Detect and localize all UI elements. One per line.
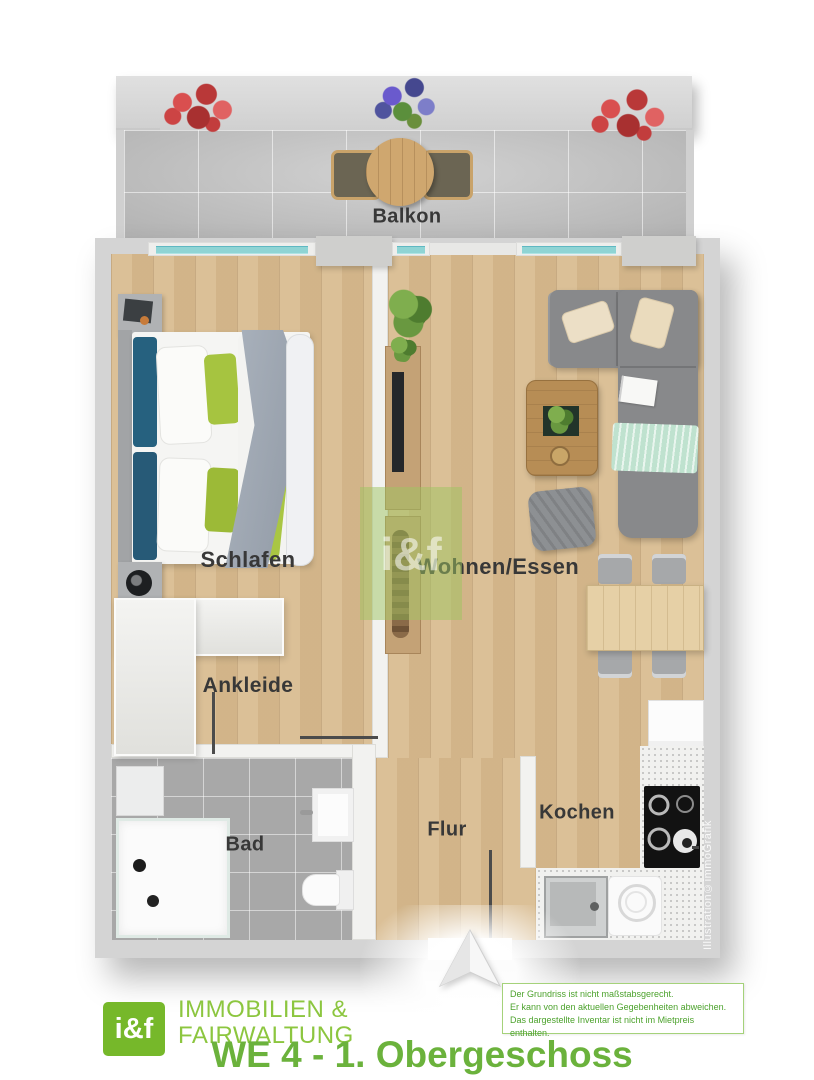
- floorplan-page: Balkon: [0, 0, 814, 1080]
- watermark-badge: i&f: [360, 487, 462, 620]
- kitchen-cooktop: [644, 786, 700, 868]
- sofa-blanket-mint: [611, 423, 699, 474]
- balcony-table: [366, 138, 434, 206]
- balcony-side-rail-left: [116, 130, 124, 238]
- bed-pillow-teal-bottom: [133, 452, 157, 560]
- entrance-arrow: [436, 928, 504, 994]
- dining-table: [586, 585, 704, 651]
- shower-drain: [147, 895, 159, 907]
- shower-handle: [133, 859, 146, 872]
- window-glass-wohnen: [522, 246, 616, 254]
- balcony-side-rail-right: [686, 130, 694, 238]
- bed-pillow-white-bottom: [156, 457, 211, 553]
- nightstand-lamp: [126, 570, 152, 596]
- kitchen-faucet: [590, 902, 599, 911]
- window-glass-schlafen: [156, 246, 308, 254]
- washbasin: [312, 788, 354, 842]
- sofa-book: [618, 376, 657, 407]
- potted-plant-large: [386, 286, 436, 338]
- cooktop-burners: [644, 786, 700, 868]
- disclaimer-box: Der Grundriss ist nicht maßstabsgerecht.…: [502, 983, 744, 1034]
- room-label-ankleide: Ankleide: [203, 674, 294, 698]
- coffee-table-cup: [550, 446, 570, 466]
- window-glass-small: [397, 246, 425, 254]
- nightstand-deco-dot: [140, 316, 149, 325]
- room-label-balkon: Balkon: [372, 206, 441, 229]
- shower: [116, 818, 230, 938]
- bed-pillow-teal-top: [133, 337, 157, 447]
- flower-box-center: [370, 72, 444, 132]
- balcony-door-threshold: [430, 243, 516, 255]
- wall-pier-left: [316, 236, 392, 266]
- tv-screen: [392, 372, 404, 472]
- disclaimer-line-1: Der Grundriss ist nicht maßstabsgerecht.: [510, 988, 736, 1001]
- dining-chair-bottom-right: [652, 648, 686, 678]
- room-label-flur: Flur: [427, 819, 466, 842]
- sofa-seam-vertical: [616, 292, 618, 366]
- bath-cabinet: [116, 766, 164, 816]
- room-label-bad: Bad: [226, 834, 265, 857]
- bed-headboard: [118, 330, 132, 566]
- kitchen-drainer: [608, 876, 662, 936]
- dining-chair-top-right: [652, 554, 686, 584]
- room-label-schlafen: Schlafen: [201, 547, 296, 573]
- sofa-seam-horizontal: [620, 366, 696, 368]
- lounge-pouf: [527, 486, 597, 552]
- washbasin-faucet: [300, 810, 313, 815]
- bed-bolster-white: [286, 334, 314, 566]
- illustration-credit: Illustration©immoGrafik: [702, 740, 714, 950]
- sideboard-plant-small: [388, 336, 420, 362]
- wall-flur-kochen: [520, 756, 536, 868]
- plan-title: WE 4 - 1. Obergeschoss: [30, 1034, 814, 1076]
- door-leaf-bad: [300, 736, 378, 739]
- toilet-bowl: [302, 874, 340, 906]
- kitchen-cabinet-tall: [648, 700, 704, 748]
- flower-box-right: [586, 82, 674, 146]
- room-label-kochen: Kochen: [539, 802, 615, 825]
- wall-pier-right: [622, 236, 696, 266]
- coffee-table-plant: [546, 404, 576, 434]
- logo-wordmark-line1: IMMOBILIEN &: [178, 997, 354, 1023]
- watermark-text: i&f: [380, 527, 441, 581]
- flower-box-left: [160, 78, 240, 136]
- disclaimer-line-2: Er kann von den aktuellen Gegebenheiten …: [510, 1001, 736, 1014]
- dining-chair-bottom-left: [598, 648, 632, 678]
- door-leaf-ankleide: [212, 692, 215, 754]
- dining-chair-top-left: [598, 554, 632, 584]
- wardrobe-left-section: [114, 598, 196, 756]
- drainer-ring-inner: [625, 891, 647, 913]
- bed-pillow-green-top: [204, 353, 241, 425]
